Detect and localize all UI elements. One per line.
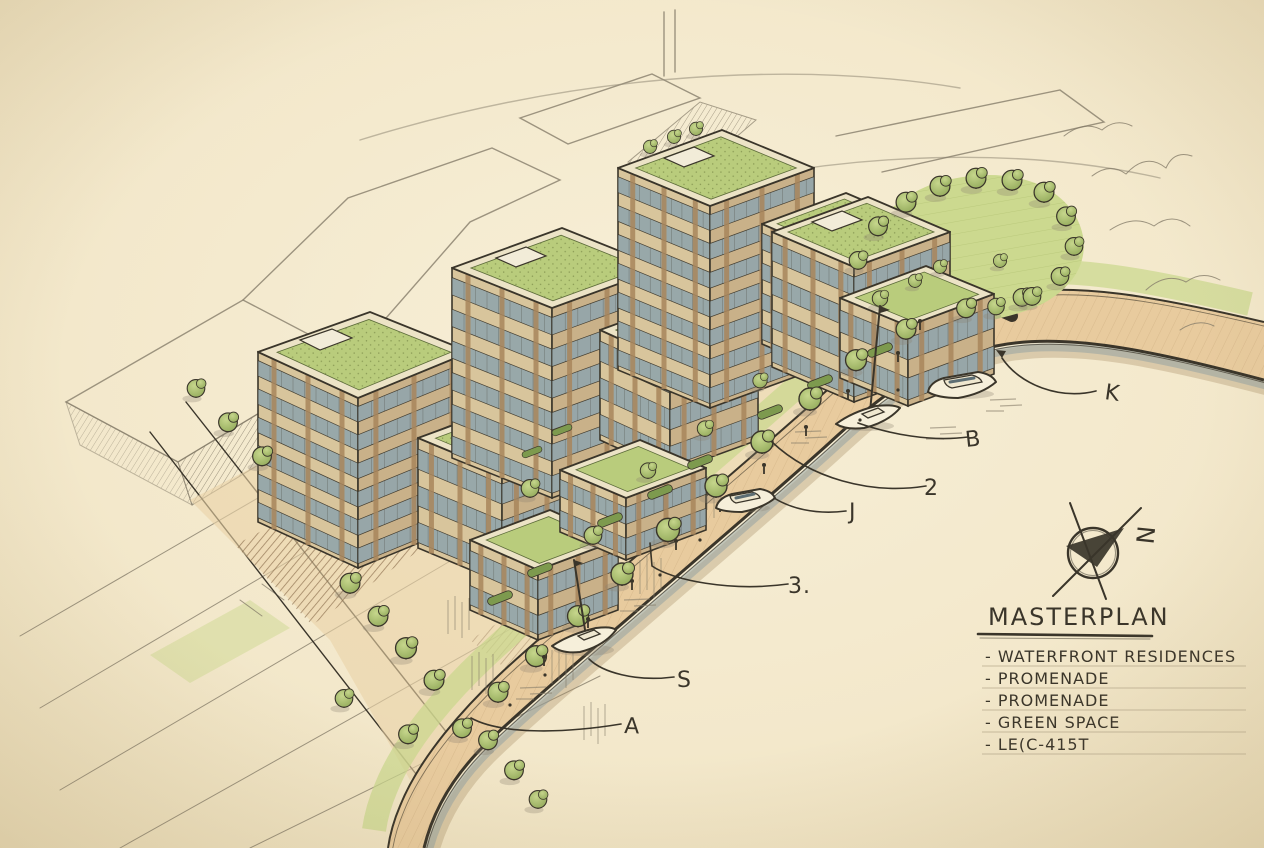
legend-item: - GREEN SPACE	[985, 713, 1120, 732]
annotation-label: A	[624, 714, 641, 740]
legend-item: - LE(C-415T	[985, 735, 1089, 754]
annotation-label: 3.	[788, 574, 811, 599]
legend-title: MASTERPLAN	[988, 603, 1170, 631]
facade-windows	[618, 174, 710, 404]
annotation-label: B	[964, 426, 983, 453]
annotation-label: J	[847, 500, 857, 525]
legend-item: - WATERFRONT RESIDENCES	[985, 647, 1236, 666]
legend-item: - PROMENADE	[985, 669, 1109, 688]
legend-item: - PROMENADE	[985, 691, 1109, 710]
facade-windows	[452, 274, 552, 493]
north-letter: N	[1130, 524, 1160, 545]
annotation-label: S	[677, 668, 692, 693]
masterplan-sketch: K B 2 J 3. S A N MASTERPLAN - WATERFRONT…	[0, 0, 1264, 848]
annotation-label: 2	[924, 476, 939, 501]
